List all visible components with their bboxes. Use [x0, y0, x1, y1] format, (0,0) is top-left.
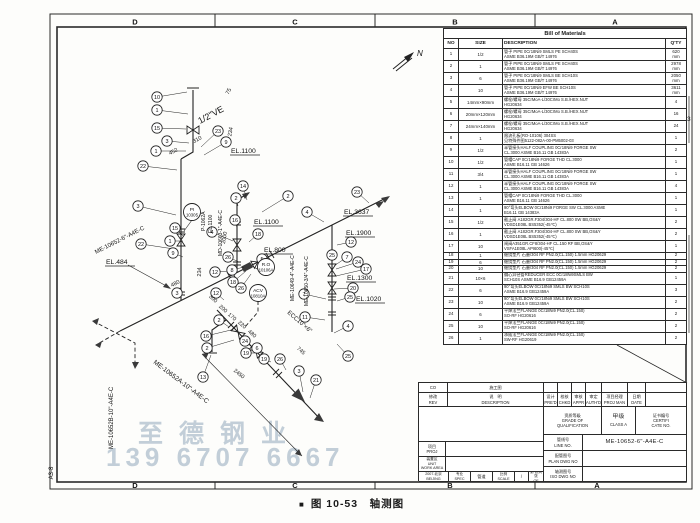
bom-title: Bill of Materials — [444, 29, 687, 39]
bom-row: 121半管接头HALF COUPLING 0Cr18Ni9 FORGE SWCL… — [444, 181, 687, 193]
callout-balloon-number: 25 — [345, 354, 351, 360]
bom-cell-description: 半管接头HALF COUPLING 0Cr18Ni9 FORGE SWCL.30… — [503, 145, 666, 157]
callout-balloon-number: 2 — [205, 346, 208, 352]
title-block: CO 施工图 修改REV 说 明DESCRIPTION 设计PRE'D 校核CH… — [418, 382, 686, 481]
bom-cell-size: 1/2 — [459, 157, 503, 169]
bom-row: 151/2截止阀 A182GR.F304/304-HF CL.800 SW BB… — [444, 217, 687, 229]
line-number-label: P-1062A — [201, 211, 207, 231]
bom-cell-description: 90°弯头ELBOW 0Cr18Ni9 SMLS BW SCH10SASME B… — [503, 284, 666, 296]
callout-balloon-number: 23 — [354, 190, 360, 196]
callout-balloon-number: 13 — [200, 375, 206, 381]
bom-row: 2110×6偏心异径管REDUCER ECC 0Cr18Ni9SMLS BWSC… — [444, 272, 687, 284]
bom-cell-qty: 24 — [666, 121, 687, 133]
tb-class: 甲级CLASS A — [602, 407, 636, 435]
bom-cell-qty: 2050mm — [666, 73, 687, 85]
leader-pi — [184, 220, 192, 231]
bom-cell-qty: 16 — [666, 109, 687, 121]
bom-cell-description: 偏心异径管REDUCER ECC 0Cr18Ni9SMLS BWSCH10S A… — [503, 272, 666, 284]
dimension-label: 220 — [236, 320, 247, 331]
bom-cell-qty: 1 — [666, 169, 687, 181]
bom-cell-size: 10 — [459, 241, 503, 253]
bom-cell-size: 1 — [459, 229, 503, 241]
zone-letter: D — [132, 481, 138, 490]
tb-grade: 资质等级GRADE OFQUALIFICATION — [544, 407, 602, 435]
callout-balloon-number: 3 — [297, 369, 300, 375]
bom-cell-size: 1 — [459, 181, 503, 193]
bom-cell-description: 螺栓/螺母 35CrMoA-L/30CrMo S.B./HEX.NUTHG206… — [503, 97, 666, 109]
bom-cell-qty: 2 — [666, 296, 687, 308]
tb-checked: 校核CHKD — [558, 393, 572, 407]
caption-text: 图 10-53 轴测图 — [311, 498, 404, 510]
tb-spec-value: 管道 — [471, 472, 493, 482]
bom-cell-description: 承插法兰FLANGE 0Cr18Ni9 PN2.0(CL.150)SW-RF H… — [503, 332, 666, 344]
bom-cell-no: 2 — [444, 61, 459, 73]
callout-balloon-number: 18 — [230, 280, 236, 286]
bom-cell-size: 6 — [459, 284, 503, 296]
callout-balloon-number: 2 — [234, 196, 237, 202]
bom-cell-description: 闸阀A351GR.CF8/304-HF CL.150 RF BB,OS&YVSF… — [503, 241, 666, 253]
elevation-label: EL.1100 — [231, 148, 256, 155]
bom-row: 113/4半管接头HALF COUPLING 0Cr18Ni9 FORGE SW… — [444, 169, 687, 181]
bom-cell-size: 1 — [459, 133, 503, 145]
bom-cell-qty: 4 — [666, 97, 687, 109]
bom-cell-no: 12 — [444, 181, 459, 193]
bom-cell-description: 截止阀 A182GR.F304/304-HF CL.800 SW BB,OS&Y… — [503, 217, 666, 229]
bom-cell-description: 平焊法兰FLANGE 0Cr18Ni9 PN2.0(CL.150)SO-RF H… — [503, 308, 666, 320]
dimension-label: 452 — [168, 147, 179, 157]
callout-balloon-number: 10 — [154, 95, 160, 101]
bom-cell-size: 6 — [459, 73, 503, 85]
tb-plan-dwg-value — [583, 451, 687, 467]
tb-line-no-label: 管线号LINE NO. — [544, 435, 583, 451]
tb-certificate: 证书编号CERTIFICATE NO. — [636, 407, 687, 435]
bom-cell-size: 20mm×120mm — [459, 109, 503, 121]
bom-cell-size: 24mm×140mm — [459, 121, 503, 133]
line-number-label: ME-10649-4"-A4E-C — [290, 255, 296, 301]
bill-of-materials: Bill of Materials NO SIZE DESCRIPTION Q'… — [443, 28, 686, 345]
bom-cell-qty: 1 — [666, 241, 687, 253]
callout-balloon-number: 17 — [363, 267, 369, 273]
bom-cell-no: 3 — [444, 73, 459, 85]
tb-proj-manager: 项目经理PROJ MAN — [602, 393, 628, 407]
callout-balloon-number: 9 — [224, 140, 227, 146]
callout-balloon-number: 6 — [255, 346, 258, 352]
callout-balloon-number: 19 — [261, 357, 267, 363]
dimension-label: 2450 — [232, 368, 245, 380]
bom-cell-description: 管帽CAP 0Cr18Ni9 FORGE THD CL.3000ASME B16… — [503, 157, 666, 169]
tb-empty — [646, 383, 687, 393]
tb-approved: 审核APPR — [572, 393, 586, 407]
bom-cell-size: 10 — [459, 85, 503, 97]
bom-cell-size: 1 — [459, 205, 503, 217]
callout-balloon-number: 1 — [155, 108, 158, 114]
tb-project-value — [446, 442, 544, 457]
bom-row: 11/2管子 PIPE 0Cr18Ni9 SMLS PE SCH40SASME … — [444, 49, 687, 61]
bom-cell-description: 平焊法兰FLANGE 0Cr18Ni9 PN2.0(CL.150)SO-RF H… — [503, 320, 666, 332]
bom-cell-no: 15 — [444, 217, 459, 229]
dimension-label: 310 — [192, 135, 203, 145]
bom-cell-qty: 2 — [666, 320, 687, 332]
bom-cell-size: 1/2 — [459, 49, 503, 61]
callout-balloon-number: 18 — [255, 232, 261, 238]
callout-balloon-number: 25 — [329, 253, 335, 259]
bom-cell-no: 17 — [444, 241, 459, 253]
figure-caption: ■图 10-53 轴测图 — [299, 496, 404, 511]
callout-balloon-number: 3 — [136, 204, 139, 210]
bom-cell-qty: 1 — [666, 272, 687, 284]
elevation-label: EL.484 — [106, 259, 128, 266]
instrument-tag-line2: 10810A — [251, 294, 266, 299]
callout-balloon-number: 23 — [215, 129, 221, 135]
tb-scale: 比例SCALE — [493, 472, 515, 482]
pipe-dashed — [93, 301, 258, 368]
bom-header-qty: Q'TY — [666, 39, 687, 49]
north-label: N — [417, 49, 423, 58]
bom-cell-no: 22 — [444, 284, 459, 296]
dimension-label: 745 — [295, 346, 306, 357]
bom-header-no: NO — [444, 39, 459, 49]
tb-description: 说 明DESCRIPTION — [448, 393, 544, 407]
bom-header-size: SIZE — [459, 39, 503, 49]
dimension-label: 234 — [197, 267, 203, 276]
callout-balloon-number: 21 — [313, 378, 319, 384]
bom-row: 91/2半管接头HALF COUPLING 0Cr18Ni9 FORGE SWC… — [444, 145, 687, 157]
tb-empty — [558, 383, 572, 393]
elevation-label: EL.1900 — [346, 230, 372, 237]
callout-balloon-number: 22 — [138, 242, 144, 248]
elevation-label: EL.3637 — [344, 209, 370, 216]
bom-cell-qty: 3611mm — [666, 85, 687, 97]
callout-balloon-number: 3 — [175, 291, 178, 297]
callout-balloon-number: 20 — [350, 286, 356, 292]
callout-balloon-number: 22 — [140, 164, 146, 170]
callout-balloon-number: 16 — [203, 334, 209, 340]
tb-construction-drawing: 施工图 — [448, 383, 544, 393]
caption-marker: ■ — [299, 500, 305, 509]
bom-cell-description: 半管接头HALF COUPLING 0Cr18Ni9 FORGE SWCL.30… — [503, 169, 666, 181]
zone-letter: B — [447, 481, 453, 490]
callout-balloon-number: 26 — [238, 286, 244, 292]
bom-cell-description: 螺栓/螺母 35CrMoA-L/30CrMo S.B./HEX.NUTHG206… — [503, 109, 666, 121]
bom-row: 620mm×120mm螺栓/螺母 35CrMoA-L/30CrMo S.B./H… — [444, 109, 687, 121]
bom-cell-qty: 3 — [666, 284, 687, 296]
callout-balloon-number: 2 — [217, 318, 220, 324]
bom-cell-description: 截止阀 A182GR.F304/304-HF CL.800 SW BB,OS&Y… — [503, 229, 666, 241]
callout-balloon-number: 24 — [242, 339, 248, 345]
bom-cell-qty: 1 — [666, 157, 687, 169]
bom-row: 410管子 PIPE 0Cr18Ni9 EFW BE SCH10SASME B3… — [444, 85, 687, 97]
tb-empty — [602, 383, 628, 393]
bom-row: 36管子 PIPE 0Cr18Ni9 SMLS BE SCH10SASME B3… — [444, 73, 687, 85]
tb-unit: 装置区UNITWORK AREA — [419, 457, 446, 472]
bom-cell-size: 14mm×90mm — [459, 97, 503, 109]
tb-project: 项目PROJ — [419, 442, 446, 457]
tb-unit-value — [446, 457, 544, 472]
pipe-vent — [181, 88, 199, 159]
bom-row: 21管子 PIPE 0Cr18Ni9 SMLS PE SCH40SASME B3… — [444, 61, 687, 73]
elevation-label: EL.800 — [264, 247, 286, 254]
bom-row: 261承插法兰FLANGE 0Cr18Ni9 PN2.0(CL.150)SW-R… — [444, 332, 687, 344]
orifice-plate — [241, 262, 253, 272]
line-number-label: 1/2"VE — [196, 104, 225, 126]
line-number-label: ME-10650-3/4"-A4E-C — [304, 256, 310, 306]
tb-rev: 修改REV — [419, 393, 448, 407]
bom-header-description: DESCRIPTION — [503, 39, 666, 49]
callout-balloon-number: 14 — [240, 184, 246, 190]
tb-empty — [628, 383, 646, 393]
bom-cell-no: 6 — [444, 109, 459, 121]
bom-cell-description: 管子 PIPE 0Cr18Ni9 EFW BE SCH10SASME B36.1… — [503, 85, 666, 97]
bom-cell-qty: 4 — [666, 181, 687, 193]
callout-balloon-number: 15 — [154, 126, 160, 132]
dimension-label: 75 — [225, 87, 233, 95]
bom-cell-size: 10 — [459, 320, 503, 332]
dimension-label: 480 — [170, 279, 181, 289]
bom-cell-no: 11 — [444, 169, 459, 181]
tb-org: 2007.北京BEIJING — [419, 472, 449, 482]
bom-cell-size: 3/4 — [459, 169, 503, 181]
bom-table: Bill of Materials NO SIZE DESCRIPTION Q'… — [443, 28, 687, 345]
tb-empty — [646, 393, 687, 407]
callout-balloon-number: 1 — [154, 149, 157, 155]
bom-cell-description: 管子 PIPE 0Cr18Ni9 SMLS PE SCH40SASME B36.… — [503, 61, 666, 73]
callout-balloon-number: 26 — [225, 255, 231, 261]
callout-balloon-number: 1 — [168, 239, 171, 245]
callout-balloon-number: 8 — [230, 268, 233, 274]
bom-cell-no: 9 — [444, 145, 459, 157]
bom-row: 724mm×140mm螺栓/螺母 35CrMoA-L/30CrMo S.B./H… — [444, 121, 687, 133]
callout-balloon-number: 16 — [232, 218, 238, 224]
zone-letter: D — [132, 18, 138, 27]
callout-balloon-number: 2 — [286, 194, 289, 200]
bom-cell-no: 23 — [444, 296, 459, 308]
callout-balloon-number: 4 — [346, 324, 349, 330]
tb-scale-value: / — [515, 472, 529, 482]
bom-cell-no: 13 — [444, 193, 459, 205]
bom-cell-qty: 1 — [666, 205, 687, 217]
bom-cell-description: 半管接头HALF COUPLING 0Cr18Ni9 FORGE SWCL.30… — [503, 181, 666, 193]
bom-cell-qty: 2 — [666, 308, 687, 320]
bom-cell-no: 16 — [444, 229, 459, 241]
bom-cell-description: 管子 PIPE 0Cr18Ni9 SMLS BE SCH10SASME B36.… — [503, 73, 666, 85]
bom-cell-qty: 1 — [666, 133, 687, 145]
callout-balloon-number: 11 — [302, 315, 308, 321]
bom-cell-no: 5 — [444, 97, 459, 109]
bom-cell-size: 1/2 — [459, 217, 503, 229]
tb-plan-dwg-label: 配管图号PLAN DWG NO — [544, 451, 583, 467]
callout-balloon-number: 24 — [355, 260, 361, 266]
bom-cell-no: 24 — [444, 308, 459, 320]
bom-cell-size: 10×6 — [459, 272, 503, 284]
elevation-label: EL.1100 — [254, 219, 279, 226]
bom-row: 246平焊法兰FLANGE 0Cr18Ni9 PN2.0(CL.150)SO-R… — [444, 308, 687, 320]
bom-row: 514mm×90mm螺栓/螺母 35CrMoA-L/30CrMo S.B./HE… — [444, 97, 687, 109]
tb-designed: 设计PRE'D — [544, 393, 558, 407]
dimension-label: 2000 — [221, 231, 229, 244]
pipe-continuation — [617, 345, 687, 383]
bom-cell-size: 10 — [459, 296, 503, 308]
instrument-signal — [245, 301, 258, 327]
tb-iso-dwg-value — [583, 467, 687, 482]
tb-date: 日期DATE — [628, 393, 646, 407]
zone-letter: C — [292, 18, 298, 27]
tb-iso-dwg-label: 轴测图号ISO DWG NO — [544, 467, 583, 482]
instrument-tag-line2: 10305 — [186, 213, 199, 218]
tb-empty — [586, 383, 602, 393]
bom-row: 101/2管帽CAP 0Cr18Ni9 FORGE THD CL.3000ASM… — [444, 157, 687, 169]
bom-cell-description: 90°弯头ELBOW 0Cr18Ni9 FORGE SW CL.3000 ASM… — [503, 205, 666, 217]
bom-cell-qty: 620mm — [666, 49, 687, 61]
tb-empty — [572, 383, 586, 393]
sheet-size-label: A3-8 — [49, 466, 55, 479]
tb-co-cell: CO — [419, 383, 448, 393]
callout-balloon-number: 19 — [243, 351, 249, 357]
bom-cell-no: 26 — [444, 332, 459, 344]
callout-balloon-number: 3 — [165, 139, 168, 145]
bom-cell-qty: 1 — [666, 193, 687, 205]
bom-row: 131管帽CAP 0Cr18Ni9 FORGE THD CL.3000ASME … — [444, 193, 687, 205]
north-arrow — [393, 52, 414, 71]
tb-line-no-value: ME-10652-6"-A4E-C — [583, 435, 687, 451]
bom-cell-description: 管帽CAP 0Cr18Ni9 FORGE THD CL.3000ASME B16… — [503, 193, 666, 205]
zone-letter: B — [452, 18, 458, 27]
bom-row: 1710闸阀A351GR.CF8/304-HF CL.150 RF BB,OS&… — [444, 241, 687, 253]
bom-cell-description: 管子 PIPE 0Cr18Ni9 SMLS PE SCH40SASME B36.… — [503, 49, 666, 61]
tb-authorized: 审定AUTH'D — [586, 393, 602, 407]
bom-cell-no: 10 — [444, 157, 459, 169]
bom-cell-no: 14 — [444, 205, 459, 217]
bom-cell-size: 1 — [459, 193, 503, 205]
bom-row: 2510平焊法兰FLANGE 0Cr18Ni9 PN2.0(CL.150)SO-… — [444, 320, 687, 332]
bom-cell-size: 1/2 — [459, 145, 503, 157]
bom-row: 22690°弯头ELBOW 0Cr18Ni9 SMLS BW SCH10SASM… — [444, 284, 687, 296]
tb-spec: 专业SPEC — [449, 472, 471, 482]
pipe-branch-pump — [237, 193, 249, 272]
zone-letter: C — [292, 481, 298, 490]
bom-cell-qty: 2 — [666, 229, 687, 241]
callout-balloon-number: 25 — [347, 295, 353, 301]
zone-letter: A — [594, 481, 600, 490]
callout-balloon-number: 12 — [348, 240, 354, 246]
bom-row: 231090°弯头ELBOW 0Cr18Ni9 SMLS BW SCH10SAS… — [444, 296, 687, 308]
instrument-tag-line2: 10106A — [259, 268, 274, 273]
revision-mark: 3 — [687, 116, 691, 123]
bom-cell-description: 螺栓/螺母 35CrMoA-L/30CrMo S.B./HEX.NUTHG206… — [503, 121, 666, 133]
bom-cell-no: 8 — [444, 133, 459, 145]
bom-cell-description: 90°弯头ELBOW 0Cr18Ni9 SMLS BW SCH10SASME B… — [503, 296, 666, 308]
callout-balloon-number: 7 — [345, 255, 348, 261]
bom-cell-size: 1 — [459, 61, 503, 73]
bom-cell-size: 1 — [459, 332, 503, 344]
bom-cell-no: 1 — [444, 49, 459, 61]
tb-sheet-of: 第 张共 张OF — [529, 472, 544, 482]
bom-cell-size: 6 — [459, 308, 503, 320]
callout-balloon-number: 9 — [171, 251, 174, 257]
bom-cell-no: 7 — [444, 121, 459, 133]
callout-balloon-number: 4 — [305, 210, 308, 216]
tb-empty — [419, 407, 544, 442]
valve-symbols — [177, 126, 336, 358]
bom-cell-qty: 2 — [666, 217, 687, 229]
bom-cell-no: 4 — [444, 85, 459, 97]
dimension-label: 234 — [227, 127, 235, 137]
line-number-label: ME-10652B-10"-A4E-C — [109, 386, 115, 449]
elevation-label: EL.1020 — [356, 296, 382, 303]
bom-row: 14190°弯头ELBOW 0Cr18Ni9 FORGE SW CL.3000 … — [444, 205, 687, 217]
elevation-label: EL.1300 — [347, 275, 373, 282]
bom-cell-qty: 2978mm — [666, 61, 687, 73]
bom-cell-qty: 2 — [666, 145, 687, 157]
bom-cell-qty: 2 — [666, 332, 687, 344]
dim-line-2450 — [202, 354, 302, 456]
leader-el484 — [128, 265, 170, 288]
zone-letter: A — [612, 18, 618, 27]
callout-balloon-number: 12 — [212, 270, 218, 276]
bom-cell-no: 25 — [444, 320, 459, 332]
dimension-label: 200 — [217, 304, 228, 315]
bom-cell-description: 限流孔板(RO-10106) 304SS见特殊件图5122-082A-00-PM… — [503, 133, 666, 145]
line-number-label: EL.1100 — [208, 215, 214, 233]
bom-row: 161截止阀 A182GR.F304/304-HF CL.800 SW BB,O… — [444, 229, 687, 241]
bom-row: 81限流孔板(RO-10106) 304SS见特殊件图5122-082A-00-… — [444, 133, 687, 145]
callout-balloon-number: 26 — [277, 357, 283, 363]
callout-balloon-number: 15 — [172, 226, 178, 232]
bom-cell-no: 21 — [444, 272, 459, 284]
tb-empty — [544, 383, 558, 393]
balloon-leader — [138, 206, 176, 215]
